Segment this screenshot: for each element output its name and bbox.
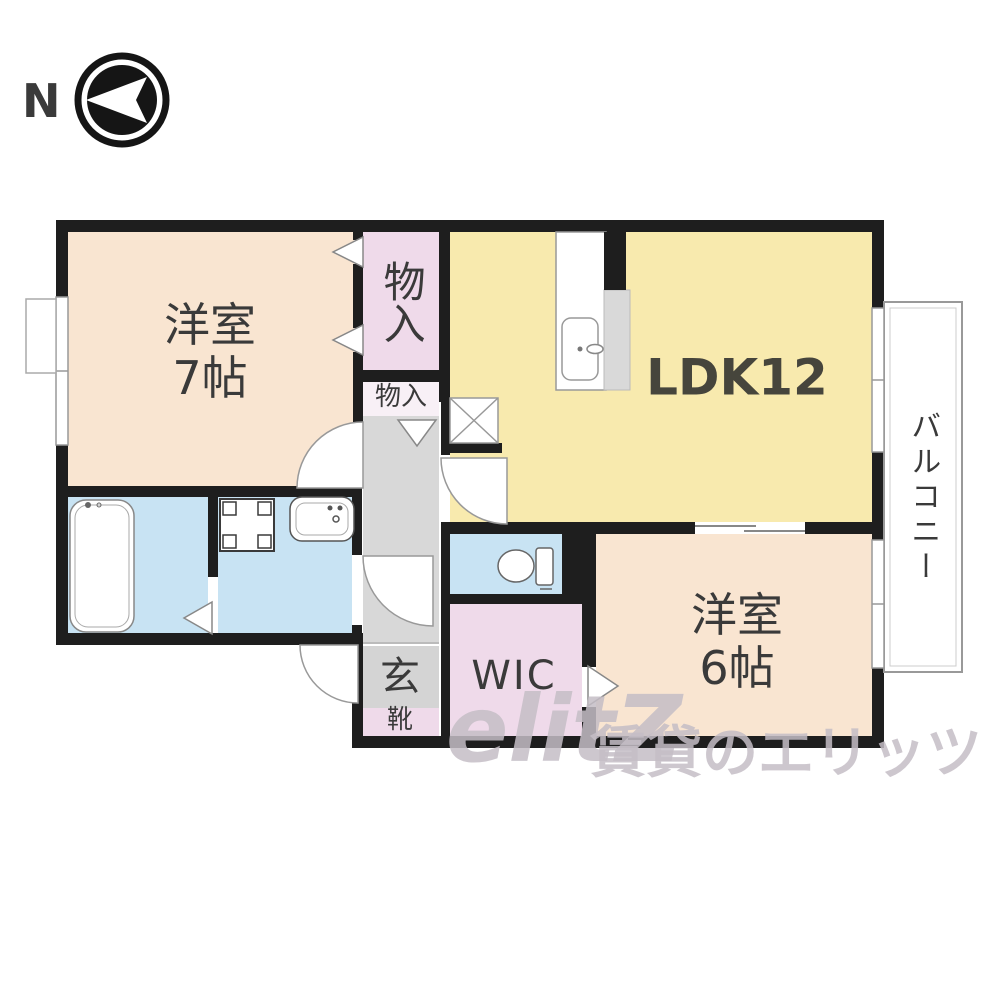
bedroom7-name: 洋室: [164, 299, 256, 352]
wic-label: WIC: [471, 653, 556, 699]
bathtub-icon: [70, 500, 134, 632]
refrigerator-space-icon: [450, 398, 498, 443]
washing-machine-icon: [220, 499, 274, 551]
closet-lower-label: 物入: [375, 383, 427, 413]
door-arc-hallway: [363, 556, 433, 626]
shoe-cabinet-label: 靴: [387, 706, 413, 736]
closet-upper-label: 物入: [377, 260, 425, 344]
bedroom7-size: 7帖: [164, 352, 256, 405]
bedroom6-name: 洋室: [691, 589, 783, 642]
floor-plan: N 洋室 7帖 LDK12 物入 物入 バルコニー 洋室 6帖 WIC 玄 靴 …: [0, 0, 1000, 1000]
door-arc-bedroom7: [297, 422, 363, 488]
ac-unit-box: [26, 299, 56, 373]
door-arc-entrance: [300, 645, 358, 703]
bedroom6-size: 6帖: [691, 642, 783, 695]
balcony-label: バルコニー: [905, 411, 940, 586]
window-bedroom7-west: [56, 297, 68, 445]
wic-door-triangle: [588, 666, 618, 706]
window-ldk-balcony: [872, 308, 884, 452]
washbasin-icon: [290, 497, 354, 541]
kitchen-sink-icon: [562, 318, 603, 380]
closet-door-triangle-upper: [333, 237, 363, 267]
sliding-door: [695, 522, 805, 534]
closet-door-triangle-lower: [333, 325, 363, 355]
bedroom7-label: 洋室 7帖: [164, 299, 256, 405]
toilet-icon: [498, 548, 553, 589]
door-arc-ldk: [441, 458, 507, 524]
ldk-label: LDK12: [646, 349, 828, 407]
entrance-label: 玄: [380, 654, 420, 700]
north-label: N: [22, 74, 61, 128]
bedroom6-label: 洋室 6帖: [691, 589, 783, 695]
window-bedroom6-balcony: [872, 540, 884, 668]
bathroom-door-triangle: [184, 602, 212, 634]
compass-icon: [78, 56, 166, 144]
closet2-door-triangle: [398, 420, 436, 446]
